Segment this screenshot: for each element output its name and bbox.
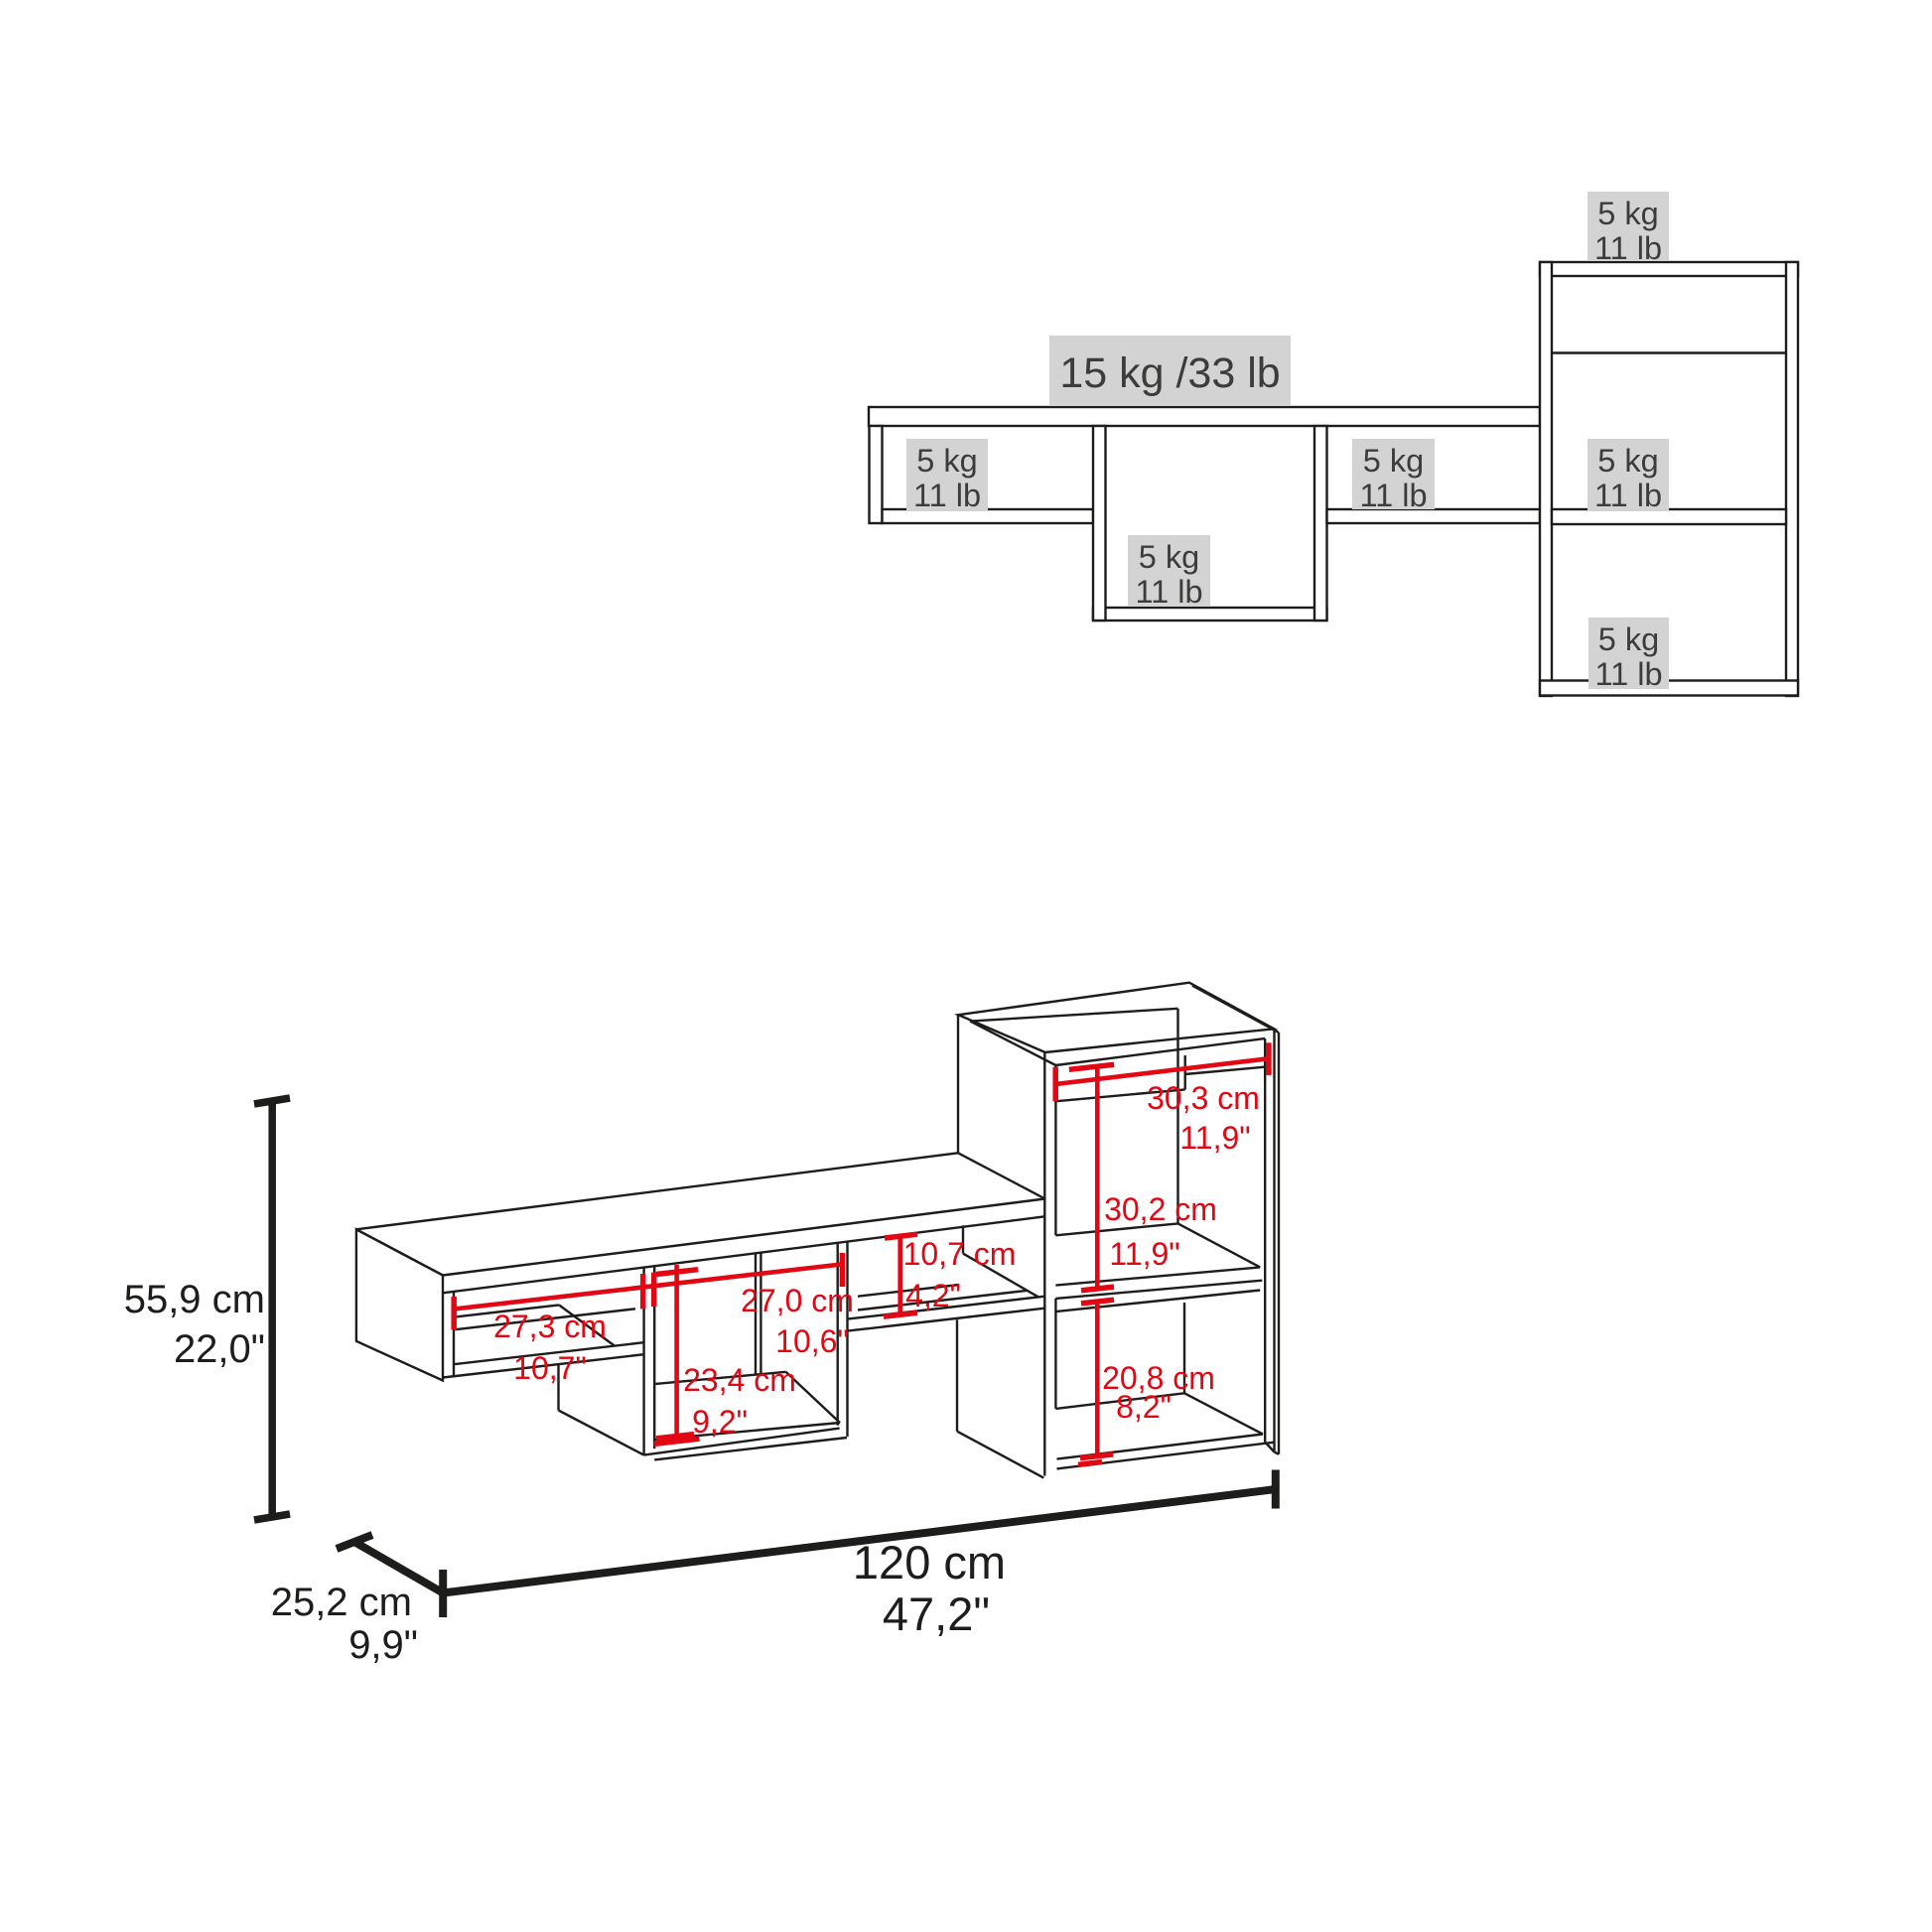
svg-text:5 kg: 5 kg bbox=[1597, 443, 1658, 479]
svg-text:22,0": 22,0" bbox=[174, 1327, 265, 1371]
svg-text:11,9": 11,9" bbox=[1179, 1120, 1250, 1156]
svg-text:5 kg: 5 kg bbox=[1139, 539, 1199, 575]
svg-text:15 kg /33 lb: 15 kg /33 lb bbox=[1059, 349, 1280, 397]
svg-text:55,9 cm: 55,9 cm bbox=[124, 1278, 265, 1321]
svg-text:5 kg: 5 kg bbox=[916, 443, 977, 479]
svg-text:11,9": 11,9" bbox=[1109, 1236, 1179, 1272]
svg-text:11 lb: 11 lb bbox=[1594, 656, 1662, 692]
svg-text:5 kg: 5 kg bbox=[1597, 196, 1658, 231]
svg-text:11 lb: 11 lb bbox=[1594, 478, 1662, 513]
svg-text:4,2": 4,2" bbox=[905, 1278, 961, 1313]
svg-text:8,2": 8,2" bbox=[1116, 1389, 1172, 1425]
svg-text:10,7 cm: 10,7 cm bbox=[903, 1236, 1017, 1272]
svg-text:5 kg: 5 kg bbox=[1598, 621, 1659, 657]
svg-text:9,2": 9,2" bbox=[692, 1404, 748, 1440]
svg-text:27,0 cm: 27,0 cm bbox=[741, 1283, 854, 1318]
svg-text:25,2 cm: 25,2 cm bbox=[271, 1581, 412, 1624]
svg-text:11 lb: 11 lb bbox=[1594, 230, 1662, 266]
svg-text:11 lb: 11 lb bbox=[1135, 574, 1202, 610]
svg-text:11 lb: 11 lb bbox=[1359, 478, 1427, 513]
svg-text:11 lb: 11 lb bbox=[913, 478, 981, 513]
svg-text:10,7": 10,7" bbox=[513, 1350, 587, 1386]
svg-text:30,3 cm: 30,3 cm bbox=[1147, 1080, 1260, 1116]
svg-text:30,2 cm: 30,2 cm bbox=[1104, 1191, 1217, 1227]
svg-text:9,9": 9,9" bbox=[348, 1623, 418, 1667]
svg-text:10,6": 10,6" bbox=[775, 1323, 849, 1359]
svg-text:23,4 cm: 23,4 cm bbox=[683, 1362, 796, 1398]
svg-text:47,2": 47,2" bbox=[883, 1587, 990, 1640]
svg-text:27,3 cm: 27,3 cm bbox=[493, 1309, 607, 1344]
svg-text:5 kg: 5 kg bbox=[1363, 443, 1424, 479]
svg-text:120 cm: 120 cm bbox=[853, 1536, 1006, 1588]
